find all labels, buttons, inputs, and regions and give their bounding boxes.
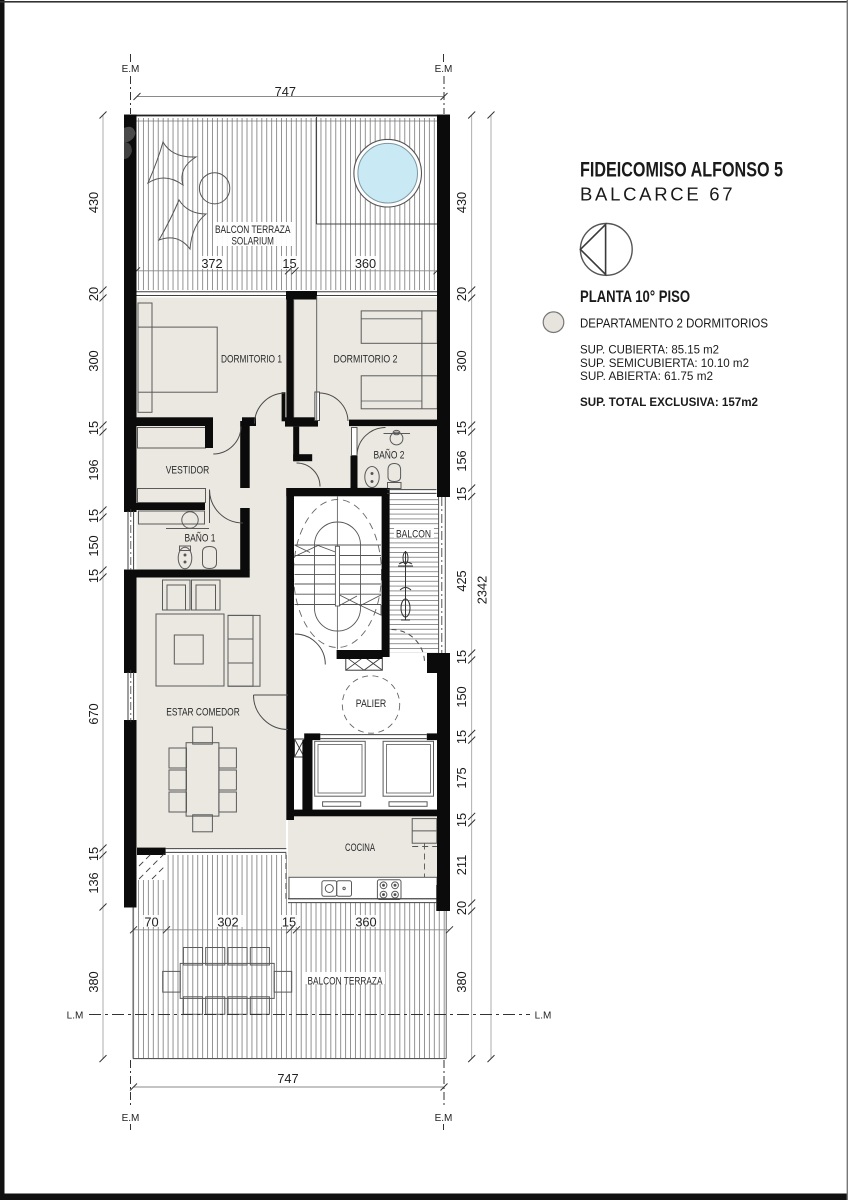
svg-text:15: 15 [86,509,101,523]
svg-text:SUP. TOTAL EXCLUSIVA: 157m2: SUP. TOTAL EXCLUSIVA: 157m2 [580,395,758,409]
svg-text:DORMITORIO 2: DORMITORIO 2 [334,354,398,366]
svg-text:BALCON TERRAZA: BALCON TERRAZA [308,976,384,988]
svg-text:15: 15 [282,256,296,271]
svg-text:COCINA: COCINA [345,842,376,854]
svg-text:ESTAR COMEDOR: ESTAR COMEDOR [166,707,240,719]
svg-text:15: 15 [454,421,469,435]
svg-text:BALCON: BALCON [396,529,431,541]
svg-text:15: 15 [454,650,469,664]
svg-text:15: 15 [86,569,101,583]
svg-text:2342: 2342 [475,576,490,604]
svg-text:300: 300 [86,350,101,371]
svg-text:747: 747 [277,1071,298,1086]
svg-text:BALCARCE 67: BALCARCE 67 [580,184,733,205]
svg-text:15: 15 [282,915,296,930]
svg-text:302: 302 [217,915,238,930]
svg-text:15: 15 [454,813,469,827]
svg-text:670: 670 [86,703,101,724]
svg-text:E.M: E.M [435,64,453,75]
svg-text:BALCON TERRAZA: BALCON TERRAZA [215,224,291,236]
svg-text:BAÑO 1: BAÑO 1 [185,532,216,545]
svg-text:E.M: E.M [122,64,140,75]
svg-text:20: 20 [454,287,469,301]
svg-text:372: 372 [201,256,222,271]
svg-text:15: 15 [86,847,101,861]
svg-text:430: 430 [454,192,469,213]
svg-text:15: 15 [454,487,469,501]
svg-text:VESTIDOR: VESTIDOR [166,465,210,477]
svg-text:196: 196 [86,459,101,480]
svg-text:SUP. CUBIERTA: 85.15 m2: SUP. CUBIERTA: 85.15 m2 [580,343,719,357]
svg-text:DORMITORIO 1: DORMITORIO 1 [221,354,282,366]
svg-text:175: 175 [454,767,469,788]
svg-text:L.M: L.M [67,1011,84,1022]
svg-text:425: 425 [454,570,469,591]
svg-text:DEPARTAMENTO 2 DORMITORIOS: DEPARTAMENTO 2 DORMITORIOS [580,317,768,331]
svg-text:15: 15 [86,421,101,435]
svg-text:15: 15 [454,730,469,744]
svg-text:20: 20 [454,901,469,915]
svg-text:150: 150 [86,535,101,556]
svg-text:380: 380 [454,971,469,992]
svg-text:E.M: E.M [122,1113,140,1124]
svg-text:E.M: E.M [435,1113,453,1124]
svg-text:20: 20 [86,287,101,301]
svg-text:360: 360 [355,915,376,930]
svg-text:SUP. SEMICUBIERTA: 10.10 m2: SUP. SEMICUBIERTA: 10.10 m2 [580,356,749,370]
svg-text:360: 360 [355,256,376,271]
svg-text:380: 380 [86,971,101,992]
svg-text:FIDEICOMISO ALFONSO 5: FIDEICOMISO ALFONSO 5 [580,159,783,182]
svg-text:136: 136 [86,872,101,893]
svg-text:70: 70 [144,915,158,930]
svg-text:PALIER: PALIER [356,698,387,710]
svg-text:300: 300 [454,350,469,371]
svg-text:156: 156 [454,450,469,471]
svg-text:SUP. ABIERTA: 61.75 m2: SUP. ABIERTA: 61.75 m2 [580,369,713,383]
svg-text:211: 211 [454,855,469,875]
svg-text:L.M: L.M [535,1011,552,1022]
svg-text:PLANTA 10° PISO: PLANTA 10° PISO [580,288,690,306]
svg-text:SOLARIUM: SOLARIUM [231,236,274,248]
svg-text:BAÑO 2: BAÑO 2 [374,449,405,462]
svg-text:430: 430 [86,192,101,213]
svg-text:150: 150 [454,686,469,707]
